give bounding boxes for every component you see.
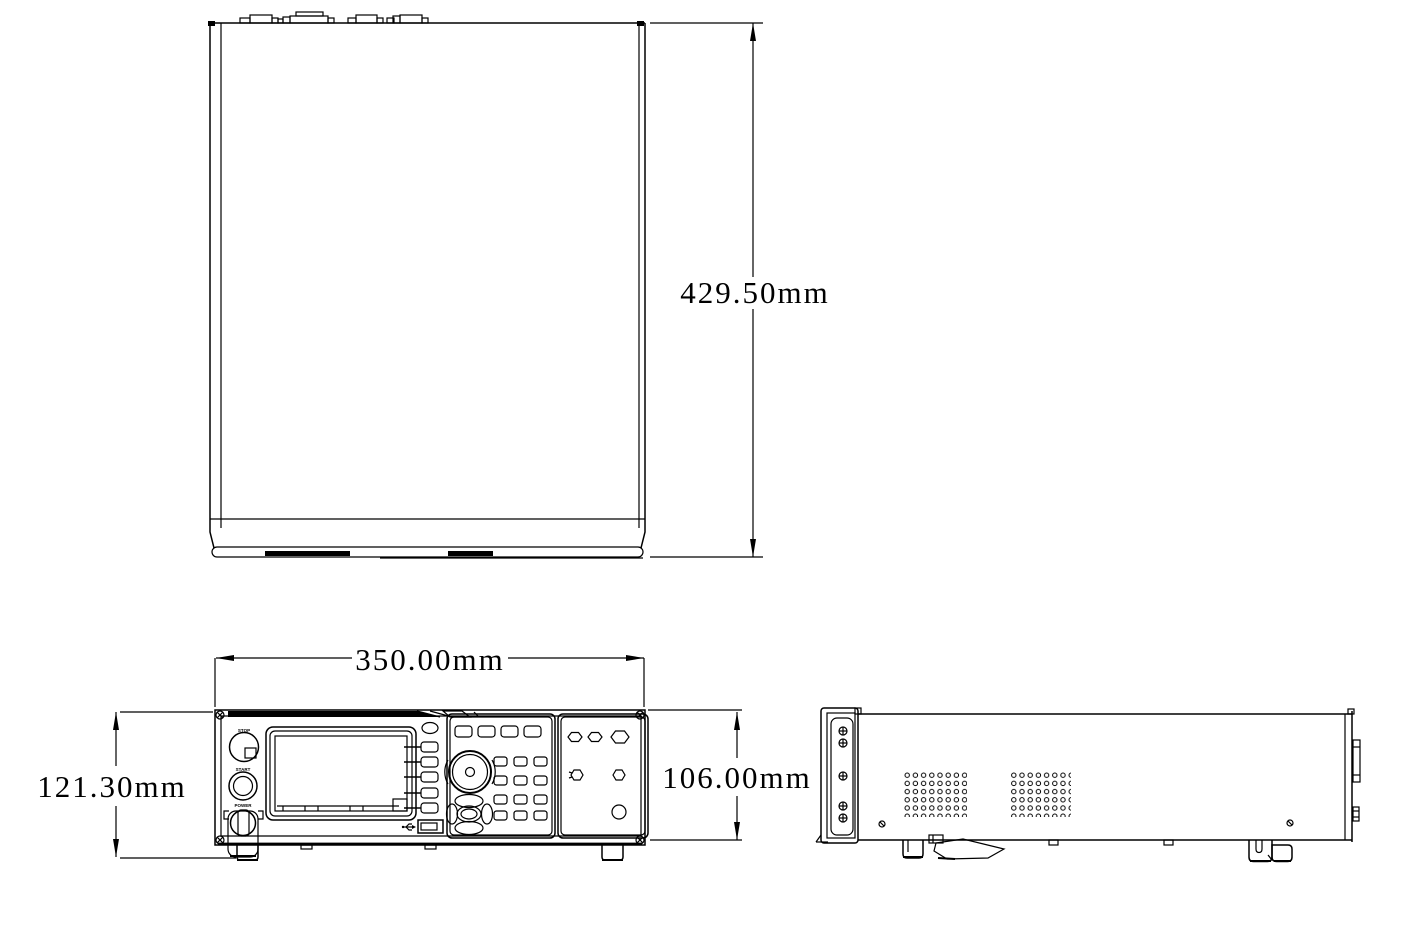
numeric-keypad[interactable] (494, 757, 547, 820)
softkey-1[interactable] (421, 742, 438, 752)
terminal-hex-1[interactable] (568, 733, 582, 742)
technical-drawing-page: 429.50mm 350.00mm 121.30mm 106.00mm (0, 0, 1411, 935)
screw-icon (839, 739, 847, 747)
vent-grid-front (904, 772, 967, 817)
power-switch-label: POWER (234, 803, 252, 808)
arrow-down-icon (113, 839, 119, 857)
power-on-mark (258, 811, 263, 819)
side-view-rear-foot (1249, 840, 1292, 862)
arrow-up-icon (113, 712, 119, 730)
arrow-right-icon (626, 655, 644, 661)
side-view-front-bezel (816, 708, 861, 843)
tilt-stand[interactable] (934, 839, 1004, 859)
screw-icon (216, 711, 224, 719)
terminal-hex-2[interactable] (588, 733, 602, 742)
dimension-width: 350.00mm (215, 642, 644, 707)
arrow-up-icon (750, 23, 756, 41)
vent-grid-rear (1010, 772, 1071, 817)
power-switch[interactable] (224, 810, 263, 857)
function-key-3[interactable] (501, 726, 518, 737)
start-button[interactable] (229, 772, 257, 800)
top-view (208, 12, 645, 558)
stop-button[interactable] (230, 733, 259, 762)
screw-icon (839, 814, 847, 822)
function-key-2[interactable] (478, 726, 495, 737)
dimension-chassis-height: 106.00mm (648, 710, 812, 840)
oval-button[interactable] (422, 723, 438, 734)
terminal-nut-right[interactable] (613, 770, 625, 780)
usb-icon (402, 824, 416, 830)
function-key-1[interactable] (455, 726, 472, 737)
screw-icon (839, 802, 847, 810)
rotary-knob[interactable] (445, 751, 495, 793)
side-view-body (858, 709, 1354, 845)
screw-icon (1287, 820, 1293, 826)
function-key-4[interactable] (524, 726, 541, 737)
overall-height-dimension-label: 121.30mm (37, 769, 186, 804)
arrow-down-icon (750, 539, 756, 557)
dimension-drawing: 429.50mm 350.00mm 121.30mm 106.00mm (0, 0, 1411, 935)
softkey-3[interactable] (421, 772, 438, 782)
terminal-panel (558, 714, 648, 838)
start-button-label: START (236, 767, 251, 772)
terminal-nut-left[interactable] (569, 770, 583, 780)
usb-port[interactable] (402, 820, 443, 833)
softkey-column[interactable] (404, 742, 438, 813)
display-corner-cell (393, 799, 407, 811)
top-view-rear-connectors (240, 12, 428, 23)
top-view-outline (208, 21, 645, 548)
side-view (816, 708, 1360, 862)
softkey-5[interactable] (421, 803, 438, 813)
screw-icon (839, 727, 847, 735)
keypad-panel (445, 714, 555, 838)
dimension-overall-height: 121.30mm (37, 712, 236, 858)
softkey-2[interactable] (421, 757, 438, 767)
front-view-chassis (215, 710, 645, 845)
screw-icon (879, 821, 885, 827)
side-view-rear-fittings (1353, 740, 1360, 821)
softkey-4[interactable] (421, 788, 438, 798)
side-view-front-foot (903, 835, 1004, 859)
arrow-down-icon (734, 822, 740, 840)
arrow-left-icon (216, 655, 234, 661)
arrow-key-cluster[interactable] (447, 795, 493, 835)
depth-dimension-label: 429.50mm (680, 275, 829, 310)
dimension-depth: 429.50mm (650, 23, 830, 557)
terminal-socket[interactable] (612, 805, 626, 819)
chassis-height-dimension-label: 106.00mm (662, 760, 811, 795)
front-view: STOP START POWER (215, 710, 648, 860)
terminal-hex-large[interactable] (611, 731, 629, 743)
width-dimension-label: 350.00mm (355, 642, 504, 677)
arrow-up-icon (734, 712, 740, 730)
front-view-feet (237, 845, 623, 860)
screw-icon (839, 772, 847, 780)
lcd-display (266, 727, 416, 820)
top-view-front-bezel (212, 547, 643, 558)
